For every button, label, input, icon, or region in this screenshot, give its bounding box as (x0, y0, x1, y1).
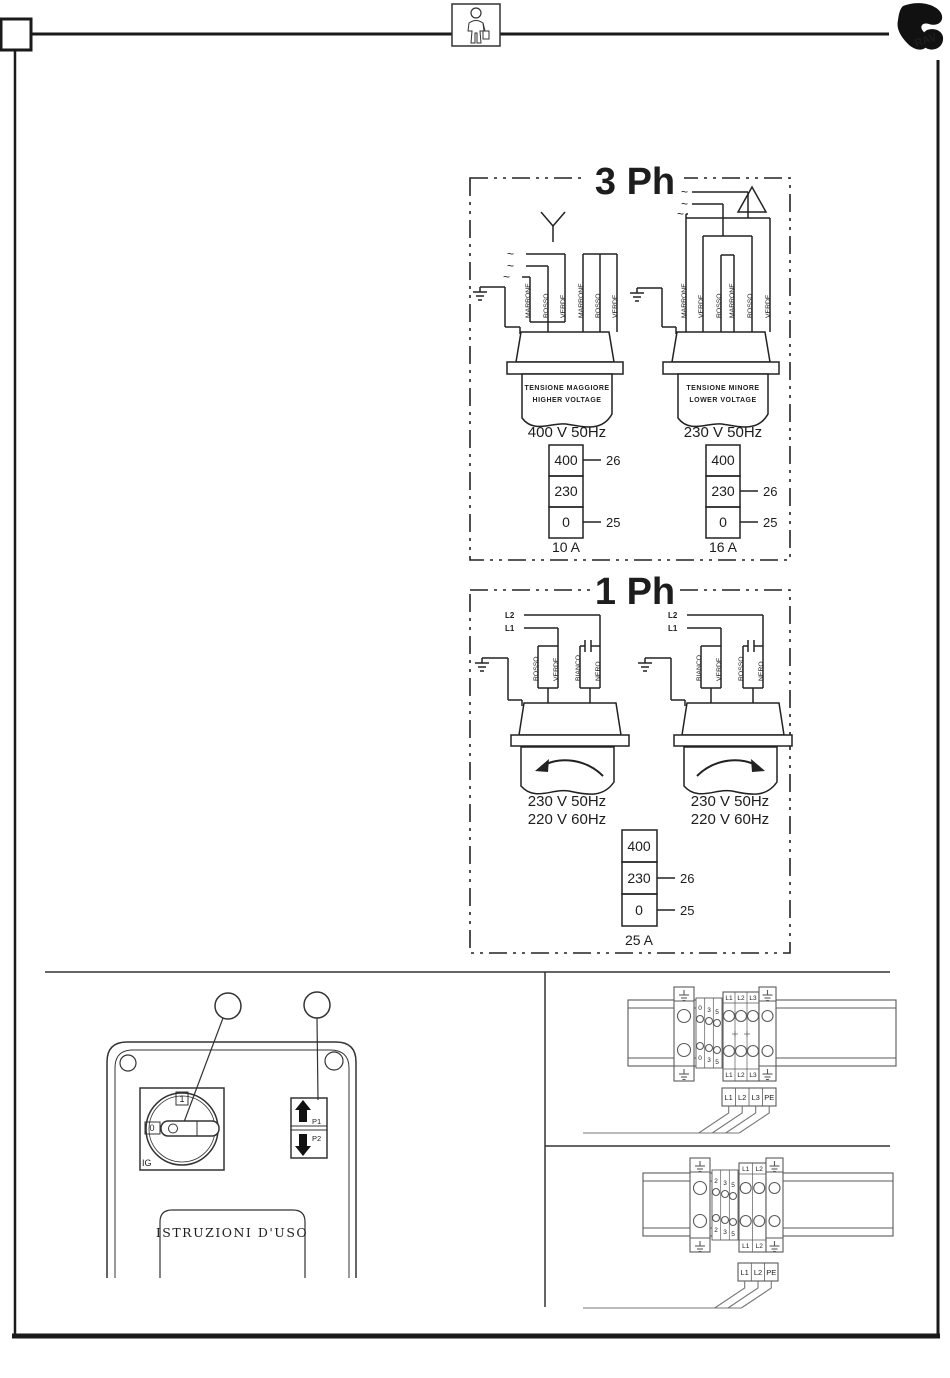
callout-circle (215, 993, 241, 1019)
line-label-l2: L2 (505, 611, 515, 620)
tap-number: 25 (680, 903, 694, 918)
tap-number: 26 (763, 484, 777, 499)
aux-label: 5 (731, 1182, 735, 1189)
screw-icon (325, 1052, 343, 1070)
line-label: L2 (756, 1243, 764, 1250)
phase-mark: ~ (677, 207, 684, 221)
phase-mark: ~ (503, 270, 510, 284)
motor-delta (663, 332, 779, 427)
wire-label: VERDE (765, 294, 772, 318)
tap-number: 25 (606, 515, 620, 530)
motor-one-phase-left (511, 703, 629, 794)
selector-value: 230 (711, 483, 735, 499)
aux-label: 5 (715, 1059, 719, 1066)
manual-page: RAV 3 Ph ~ ~ ~ MARRONE ROSSO (0, 0, 950, 1378)
line-label: L1 (725, 1072, 733, 1079)
terminal-diagram-3ph (583, 987, 896, 1133)
tap-number: 25 (763, 515, 777, 530)
down-arrow-icon (295, 1134, 311, 1156)
motor-one-phase-right (674, 703, 792, 794)
star-phase-marks: ~ ~ ~ (503, 247, 514, 284)
aux-label: 0 (698, 1005, 702, 1012)
motor-star (507, 332, 623, 427)
strip-label: PE (764, 1093, 774, 1102)
strip-label: L1 (741, 1268, 749, 1277)
callout-circle (304, 992, 330, 1018)
wire-label: VERDE (716, 657, 723, 681)
star-wire-labels: MARRONE ROSSO VERDE MARRONE ROSSO VERDE (525, 283, 619, 318)
fuse-rating: 16 A (709, 539, 738, 555)
motor-tag-line2: HIGHER VOLTAGE (533, 397, 602, 404)
capacitor-icon (580, 640, 600, 652)
earth-icon (475, 658, 522, 706)
selector-value: 0 (635, 902, 643, 918)
strip-label: L3 (752, 1093, 760, 1102)
line-label: L3 (749, 1072, 757, 1079)
capacitor-icon (743, 640, 763, 652)
corner-box (1, 19, 31, 50)
delta-wire-labels: MARRONE VERDE ROSSO MARRONE ROSSO VERDE (681, 283, 772, 318)
strip-label: L1 (725, 1093, 733, 1102)
voltage-label: 220 V 60Hz (528, 811, 606, 828)
wire-label: VERDE (612, 294, 619, 318)
motor-tag-line1: TENSIONE MAGGIORE (524, 385, 609, 392)
supply-wires (583, 1106, 769, 1133)
voltage-label: 230 V 50Hz (528, 793, 606, 810)
tap-number: 26 (680, 871, 694, 886)
person-icon (452, 4, 500, 46)
supply-wires (583, 1281, 771, 1308)
line-terminal-block (723, 992, 759, 1081)
voltage-label: 230 V 50Hz (691, 793, 769, 810)
three-phase-title: 3 Ph (595, 161, 675, 203)
wire-label: MARRONE (729, 283, 736, 318)
screw-icon (120, 1055, 136, 1071)
line-label: L2 (756, 1166, 764, 1173)
aux-label: 3 (723, 1180, 727, 1187)
aux-label: 5 (731, 1231, 735, 1238)
wire-label: BIANCO (575, 655, 582, 681)
delta-symbol-icon (738, 187, 766, 212)
instructions-plate (160, 1210, 305, 1278)
selector-value: 400 (627, 838, 651, 854)
wire-label: NERO (758, 661, 765, 681)
rav-logo-icon: RAV (897, 3, 943, 50)
aux-label: 2 (714, 1178, 718, 1185)
line-label: L1 (742, 1166, 750, 1173)
wire-label: VERDE (560, 294, 567, 318)
aux-label: 3 (723, 1229, 727, 1236)
earth-icon (638, 658, 685, 706)
line-label-l2: L2 (668, 611, 678, 620)
aux-label: 2 (714, 1227, 718, 1234)
line-label-l1: L1 (668, 624, 678, 633)
switch-handle (161, 1121, 219, 1136)
earth-icon (630, 288, 676, 334)
earth-icon (473, 287, 520, 334)
one-phase-left-wire-labels: ROSSO VERDE BIANCO NERO (533, 655, 602, 681)
selector-value: 400 (711, 452, 735, 468)
fuse-rating: 25 A (625, 932, 654, 948)
line-label: L2 (737, 1072, 745, 1079)
selector-value: 400 (554, 452, 578, 468)
strip-label: L2 (738, 1093, 746, 1102)
up-arrow-icon (295, 1100, 311, 1122)
page-drawing: RAV 3 Ph ~ ~ ~ MARRONE ROSSO (0, 0, 950, 1378)
wire-label: ROSSO (543, 293, 550, 318)
wire-label: MARRONE (578, 283, 585, 318)
line-label-l1: L1 (505, 624, 515, 633)
aux-label: 5 (715, 1009, 719, 1016)
switch-pos-on: 1 (179, 1094, 184, 1104)
motor-tag-line1: TENSIONE MINORE (686, 385, 759, 392)
earth-terminal-block (759, 987, 776, 1081)
wire-label: VERDE (698, 294, 705, 318)
wire-label: MARRONE (525, 283, 532, 318)
earth-terminal-block (674, 987, 694, 1081)
one-phase-right-wire-labels: BIANCO VERDE ROSSO NERO (696, 655, 765, 681)
button-label-down: P2 (312, 1134, 321, 1143)
selector-value: 230 (554, 483, 578, 499)
switch-pos-off: 0 (149, 1123, 154, 1133)
button-label-up: P1 (312, 1117, 321, 1126)
wire-label: VERDE (553, 657, 560, 681)
line-label: L1 (725, 995, 733, 1002)
wire-label: ROSSO (738, 656, 745, 681)
instructions-plate-text: ISTRUZIONI D'USO (156, 1225, 308, 1240)
switch-label: IG (142, 1158, 152, 1168)
aux-label: 3 (707, 1057, 711, 1064)
line-label: L2 (737, 995, 745, 1002)
voltage-label: 220 V 60Hz (691, 811, 769, 828)
selector-value: 230 (627, 870, 651, 886)
aux-label: 3 (707, 1007, 711, 1014)
wire-label: ROSSO (533, 656, 540, 681)
star-symbol-icon (541, 212, 565, 242)
wire-label: MARRONE (681, 283, 688, 318)
voltage-label: 230 V 50Hz (684, 424, 762, 441)
strip-label: L2 (754, 1268, 762, 1277)
terminal-diagram-1ph (583, 1158, 893, 1308)
line-label: L1 (742, 1243, 750, 1250)
earth-terminal-block (690, 1158, 710, 1252)
motor-tag-line2: LOWER VOLTAGE (689, 397, 756, 404)
wire-label: ROSSO (716, 293, 723, 318)
wire-label: NERO (595, 661, 602, 681)
wire-label: BIANCO (696, 655, 703, 681)
tap-number: 26 (606, 453, 620, 468)
up-down-buttons (291, 1098, 327, 1158)
strip-label: PE (766, 1268, 776, 1277)
selector-value: 0 (719, 514, 727, 530)
selector-value: 0 (562, 514, 570, 530)
fuse-rating: 10 A (552, 539, 581, 555)
voltage-label: 400 V 50Hz (528, 424, 606, 441)
wire-label: ROSSO (595, 293, 602, 318)
line-label: L3 (749, 995, 757, 1002)
aux-label: 0 (698, 1055, 702, 1062)
wire-label: ROSSO (747, 293, 754, 318)
one-phase-title: 1 Ph (595, 571, 675, 613)
earth-terminal-block (766, 1158, 783, 1252)
line-terminal-block (739, 1163, 766, 1252)
